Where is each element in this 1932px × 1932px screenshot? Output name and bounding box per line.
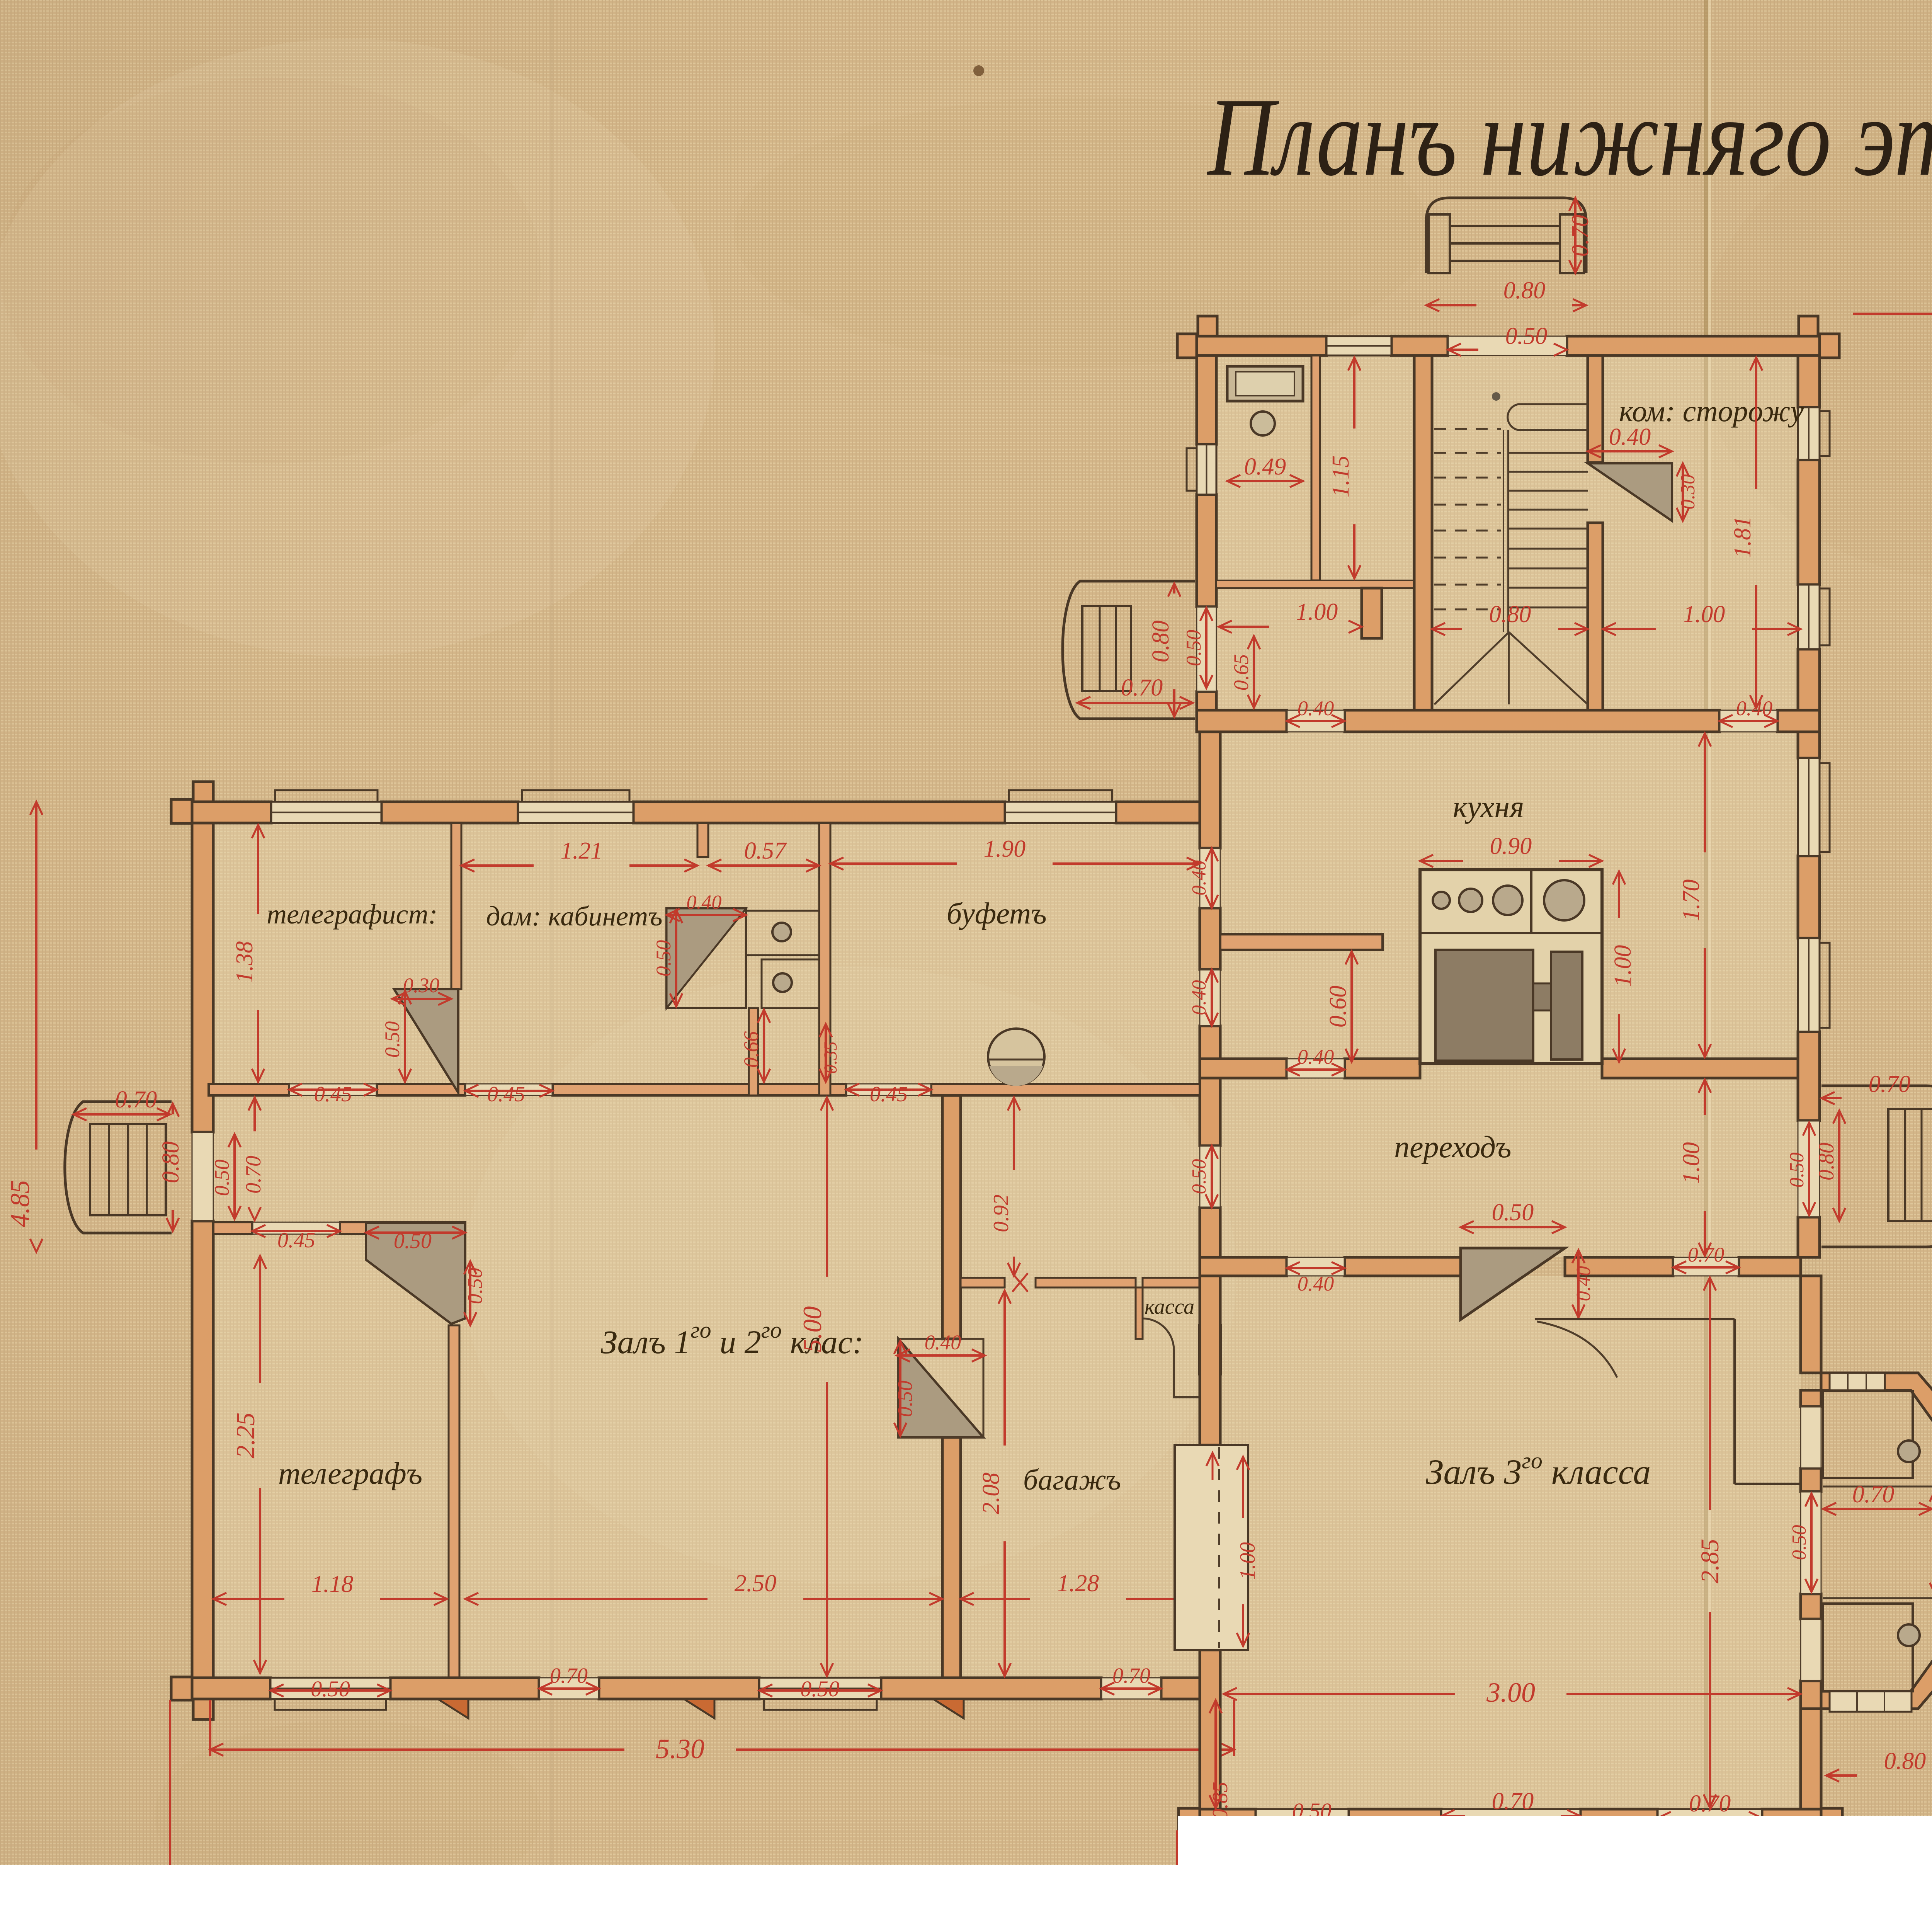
svg-text:1.81: 1.81 xyxy=(1730,516,1756,558)
svg-text:касса: касса xyxy=(1145,1295,1194,1319)
svg-text:0.50: 0.50 xyxy=(1786,1153,1808,1188)
svg-text:0.80: 0.80 xyxy=(1503,277,1546,304)
svg-text:0.70: 0.70 xyxy=(1869,1071,1911,1097)
svg-text:0.92: 0.92 xyxy=(989,1194,1013,1232)
svg-text:0.70: 0.70 xyxy=(115,1087,157,1113)
svg-text:2.50: 2.50 xyxy=(735,1570,777,1597)
svg-text:0.45: 0.45 xyxy=(314,1082,352,1106)
svg-text:1.00: 1.00 xyxy=(1678,1142,1704,1184)
svg-text:0.70: 0.70 xyxy=(1121,675,1163,701)
svg-text:0.80: 0.80 xyxy=(1489,601,1531,628)
svg-text:0.40: 0.40 xyxy=(1573,1266,1595,1301)
svg-text:0.40: 0.40 xyxy=(1188,861,1210,896)
svg-text:2.08: 2.08 xyxy=(978,1473,1004,1515)
svg-text:1.70: 1.70 xyxy=(1678,879,1704,922)
svg-text:0.50: 0.50 xyxy=(1188,1159,1210,1194)
svg-text:0.45: 0.45 xyxy=(487,1082,525,1106)
svg-text:0.49: 0.49 xyxy=(1244,454,1286,480)
svg-text:0.70: 0.70 xyxy=(1852,1481,1895,1508)
svg-text:0.40: 0.40 xyxy=(1298,1045,1334,1068)
svg-text:0.50: 0.50 xyxy=(210,1160,233,1196)
svg-text:телеграфист:: телеграфист: xyxy=(267,899,437,930)
svg-text:2.25: 2.25 xyxy=(231,1413,260,1459)
svg-text:0.70: 0.70 xyxy=(241,1156,265,1194)
svg-text:1.38: 1.38 xyxy=(231,941,258,983)
svg-text:0.40: 0.40 xyxy=(1298,697,1334,720)
svg-text:Планъ нижняго этажа.,: Планъ нижняго этажа., xyxy=(1206,75,1932,199)
svg-text:0.70: 0.70 xyxy=(1492,1788,1534,1815)
svg-text:0.50: 0.50 xyxy=(893,1381,917,1417)
svg-text:0.80: 0.80 xyxy=(158,1141,184,1184)
svg-text:0.40: 0.40 xyxy=(1298,1272,1334,1295)
svg-text:0.50: 0.50 xyxy=(1505,323,1548,349)
svg-text:переходъ: переходъ xyxy=(1394,1130,1511,1164)
svg-text:3.00: 3.00 xyxy=(1486,1677,1535,1708)
svg-text:1.00: 1.00 xyxy=(1296,599,1338,625)
svg-text:багажъ: багажъ xyxy=(1023,1464,1121,1496)
svg-text:0.45: 0.45 xyxy=(277,1228,315,1252)
svg-text:0.50: 0.50 xyxy=(381,1021,404,1058)
svg-text:0.45: 0.45 xyxy=(870,1082,908,1106)
svg-text:0.65: 0.65 xyxy=(1230,654,1253,691)
svg-text:5.00: 5.00 xyxy=(798,1306,827,1352)
svg-text:0.70: 0.70 xyxy=(1567,215,1594,257)
svg-text:буфетъ: буфетъ xyxy=(947,896,1047,930)
svg-text:кухня: кухня xyxy=(1453,790,1524,824)
svg-text:дам: кабинетъ: дам: кабинетъ xyxy=(486,901,663,932)
svg-text:2.85: 2.85 xyxy=(1696,1539,1724,1583)
svg-text:1.18: 1.18 xyxy=(311,1571,354,1597)
svg-text:телеграфъ: телеграфъ xyxy=(278,1457,422,1491)
svg-text:0.70: 0.70 xyxy=(1689,1791,1731,1817)
svg-text:0.40: 0.40 xyxy=(1736,697,1773,720)
svg-text:0.40: 0.40 xyxy=(925,1331,961,1354)
svg-text:4.85: 4.85 xyxy=(5,1180,35,1228)
svg-text:0.50: 0.50 xyxy=(463,1268,486,1304)
svg-text:0.60: 0.60 xyxy=(1929,1531,1932,1568)
svg-text:3.40: 3.40 xyxy=(1484,1890,1533,1921)
svg-text:0.50: 0.50 xyxy=(311,1676,350,1701)
svg-text:0.40: 0.40 xyxy=(1188,980,1210,1015)
svg-text:0.40: 0.40 xyxy=(687,891,722,913)
svg-text:0.30: 0.30 xyxy=(1677,474,1699,510)
svg-text:0.50: 0.50 xyxy=(1292,1798,1332,1823)
svg-text:0.35: 0.35 xyxy=(820,1041,841,1074)
svg-text:0.70: 0.70 xyxy=(1112,1664,1150,1688)
svg-text:1.21: 1.21 xyxy=(561,838,603,864)
svg-text:0.66: 0.66 xyxy=(740,1031,763,1068)
svg-text:0.40: 0.40 xyxy=(1609,424,1651,450)
svg-text:1.90: 1.90 xyxy=(984,836,1026,862)
svg-text:0.70: 0.70 xyxy=(550,1664,588,1688)
svg-text:1.28: 1.28 xyxy=(1057,1570,1099,1597)
svg-text:1.00: 1.00 xyxy=(1236,1542,1260,1580)
svg-text:0.90: 0.90 xyxy=(1490,833,1532,859)
svg-text:0.70: 0.70 xyxy=(1688,1243,1725,1266)
svg-text:1.00: 1.00 xyxy=(1610,945,1636,987)
svg-text:0.50: 0.50 xyxy=(1788,1525,1810,1560)
svg-text:0.50: 0.50 xyxy=(1182,630,1205,667)
svg-text:0.80: 0.80 xyxy=(1148,621,1174,663)
svg-text:0.85: 0.85 xyxy=(1208,1782,1232,1820)
svg-text:0.50: 0.50 xyxy=(800,1676,840,1701)
svg-text:0.80: 0.80 xyxy=(1884,1748,1926,1774)
svg-text:0.50: 0.50 xyxy=(1492,1199,1534,1226)
svg-text:ком: сторожу: ком: сторожу xyxy=(1619,394,1804,428)
svg-text:0.50: 0.50 xyxy=(394,1229,432,1253)
svg-text:5.30: 5.30 xyxy=(656,1733,704,1764)
svg-text:0.30: 0.30 xyxy=(403,974,440,997)
svg-text:0.50: 0.50 xyxy=(652,940,675,977)
svg-text:0.60: 0.60 xyxy=(1325,986,1351,1028)
svg-text:1.00: 1.00 xyxy=(1683,601,1725,628)
svg-text:0.80: 0.80 xyxy=(1815,1143,1838,1180)
svg-text:1.15: 1.15 xyxy=(1328,456,1354,498)
svg-text:0.57: 0.57 xyxy=(744,838,787,864)
